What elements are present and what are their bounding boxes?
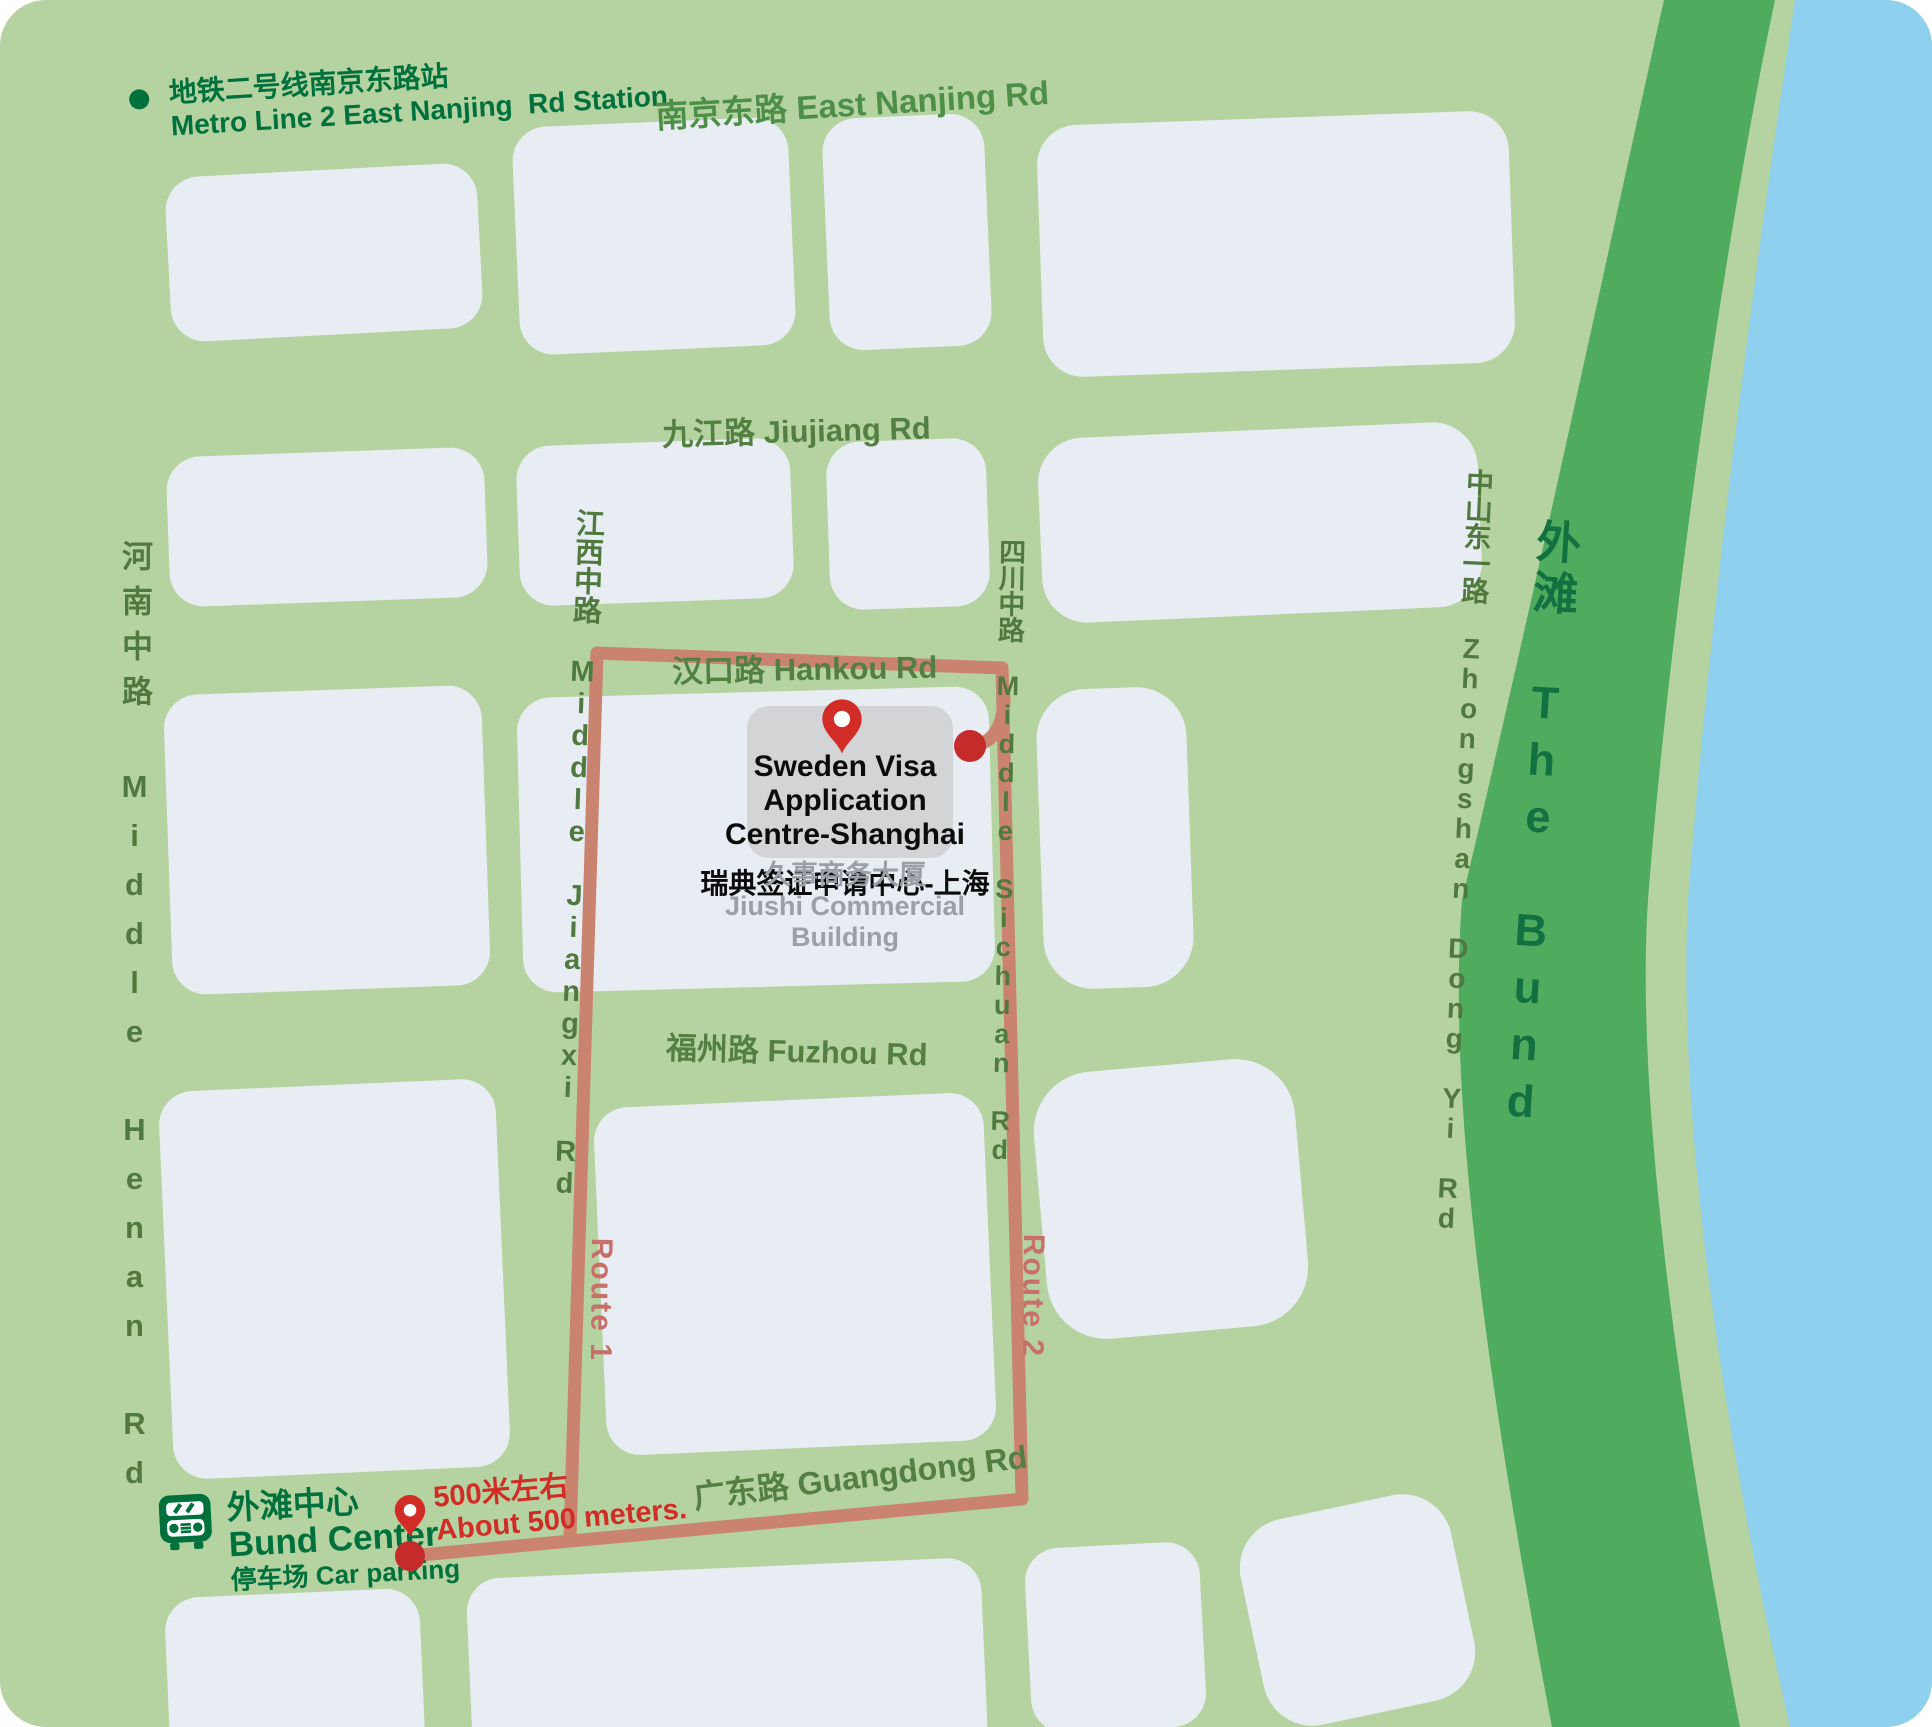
road-label-jiujiang: 九江路 Jiujiang Rd [661, 402, 931, 454]
map-screenshot: Sweden Visa Application Centre-Shanghai … [0, 0, 1932, 1727]
building-name-en: Jiushi Commercial Building [690, 891, 1000, 953]
city-block [158, 1078, 512, 1480]
city-block [1035, 685, 1195, 990]
city-block [1036, 420, 1484, 624]
route1-label: Route 1 [583, 1238, 618, 1362]
city-block [164, 162, 484, 343]
bus-icon [158, 1491, 213, 1552]
route2-label: Route 2 [1015, 1234, 1050, 1358]
city-block [593, 1092, 998, 1457]
road-label-hankou: 汉口路 Hankou Rd [672, 642, 938, 692]
bund-center-label: 外滩中心 Bund Center 停车场 Car parking [158, 1478, 461, 1599]
city-block [1036, 110, 1517, 378]
building-name-zh: 久事商务大厦 [690, 860, 1000, 891]
city-block [164, 1588, 427, 1727]
city-block [163, 685, 491, 996]
city-block [165, 446, 488, 607]
city-block [515, 437, 794, 606]
road-label-henan: 河南中路 Middle Henan Rd [112, 540, 157, 1504]
road-label-sichuan: 四川中路 Middle Sichuan Rd [981, 538, 1031, 1165]
huangpu-river-water [1686, 0, 1932, 1727]
city-block [825, 437, 991, 610]
city-block [1231, 1485, 1485, 1727]
city-block [1029, 1054, 1313, 1344]
building-name-label: 久事商务大厦 Jiushi Commercial Building [690, 860, 1000, 953]
city-block [465, 1557, 989, 1727]
city-block [1023, 1541, 1207, 1727]
destination-name-en-line1: Sweden Visa Application [690, 750, 1000, 818]
area-label-the-bund: 外滩 The Bund [1486, 517, 1588, 1135]
shanghai-access-map: Sweden Visa Application Centre-Shanghai … [0, 0, 1932, 1727]
distance-label: 500米左右 About 500 meters. [432, 1460, 688, 1548]
destination-name-en-line2: Centre-Shanghai [690, 818, 1000, 852]
road-label-fuzhou: 福州路 Fuzhou Rd [665, 1023, 928, 1075]
city-block [511, 116, 797, 356]
city-block [821, 113, 993, 352]
